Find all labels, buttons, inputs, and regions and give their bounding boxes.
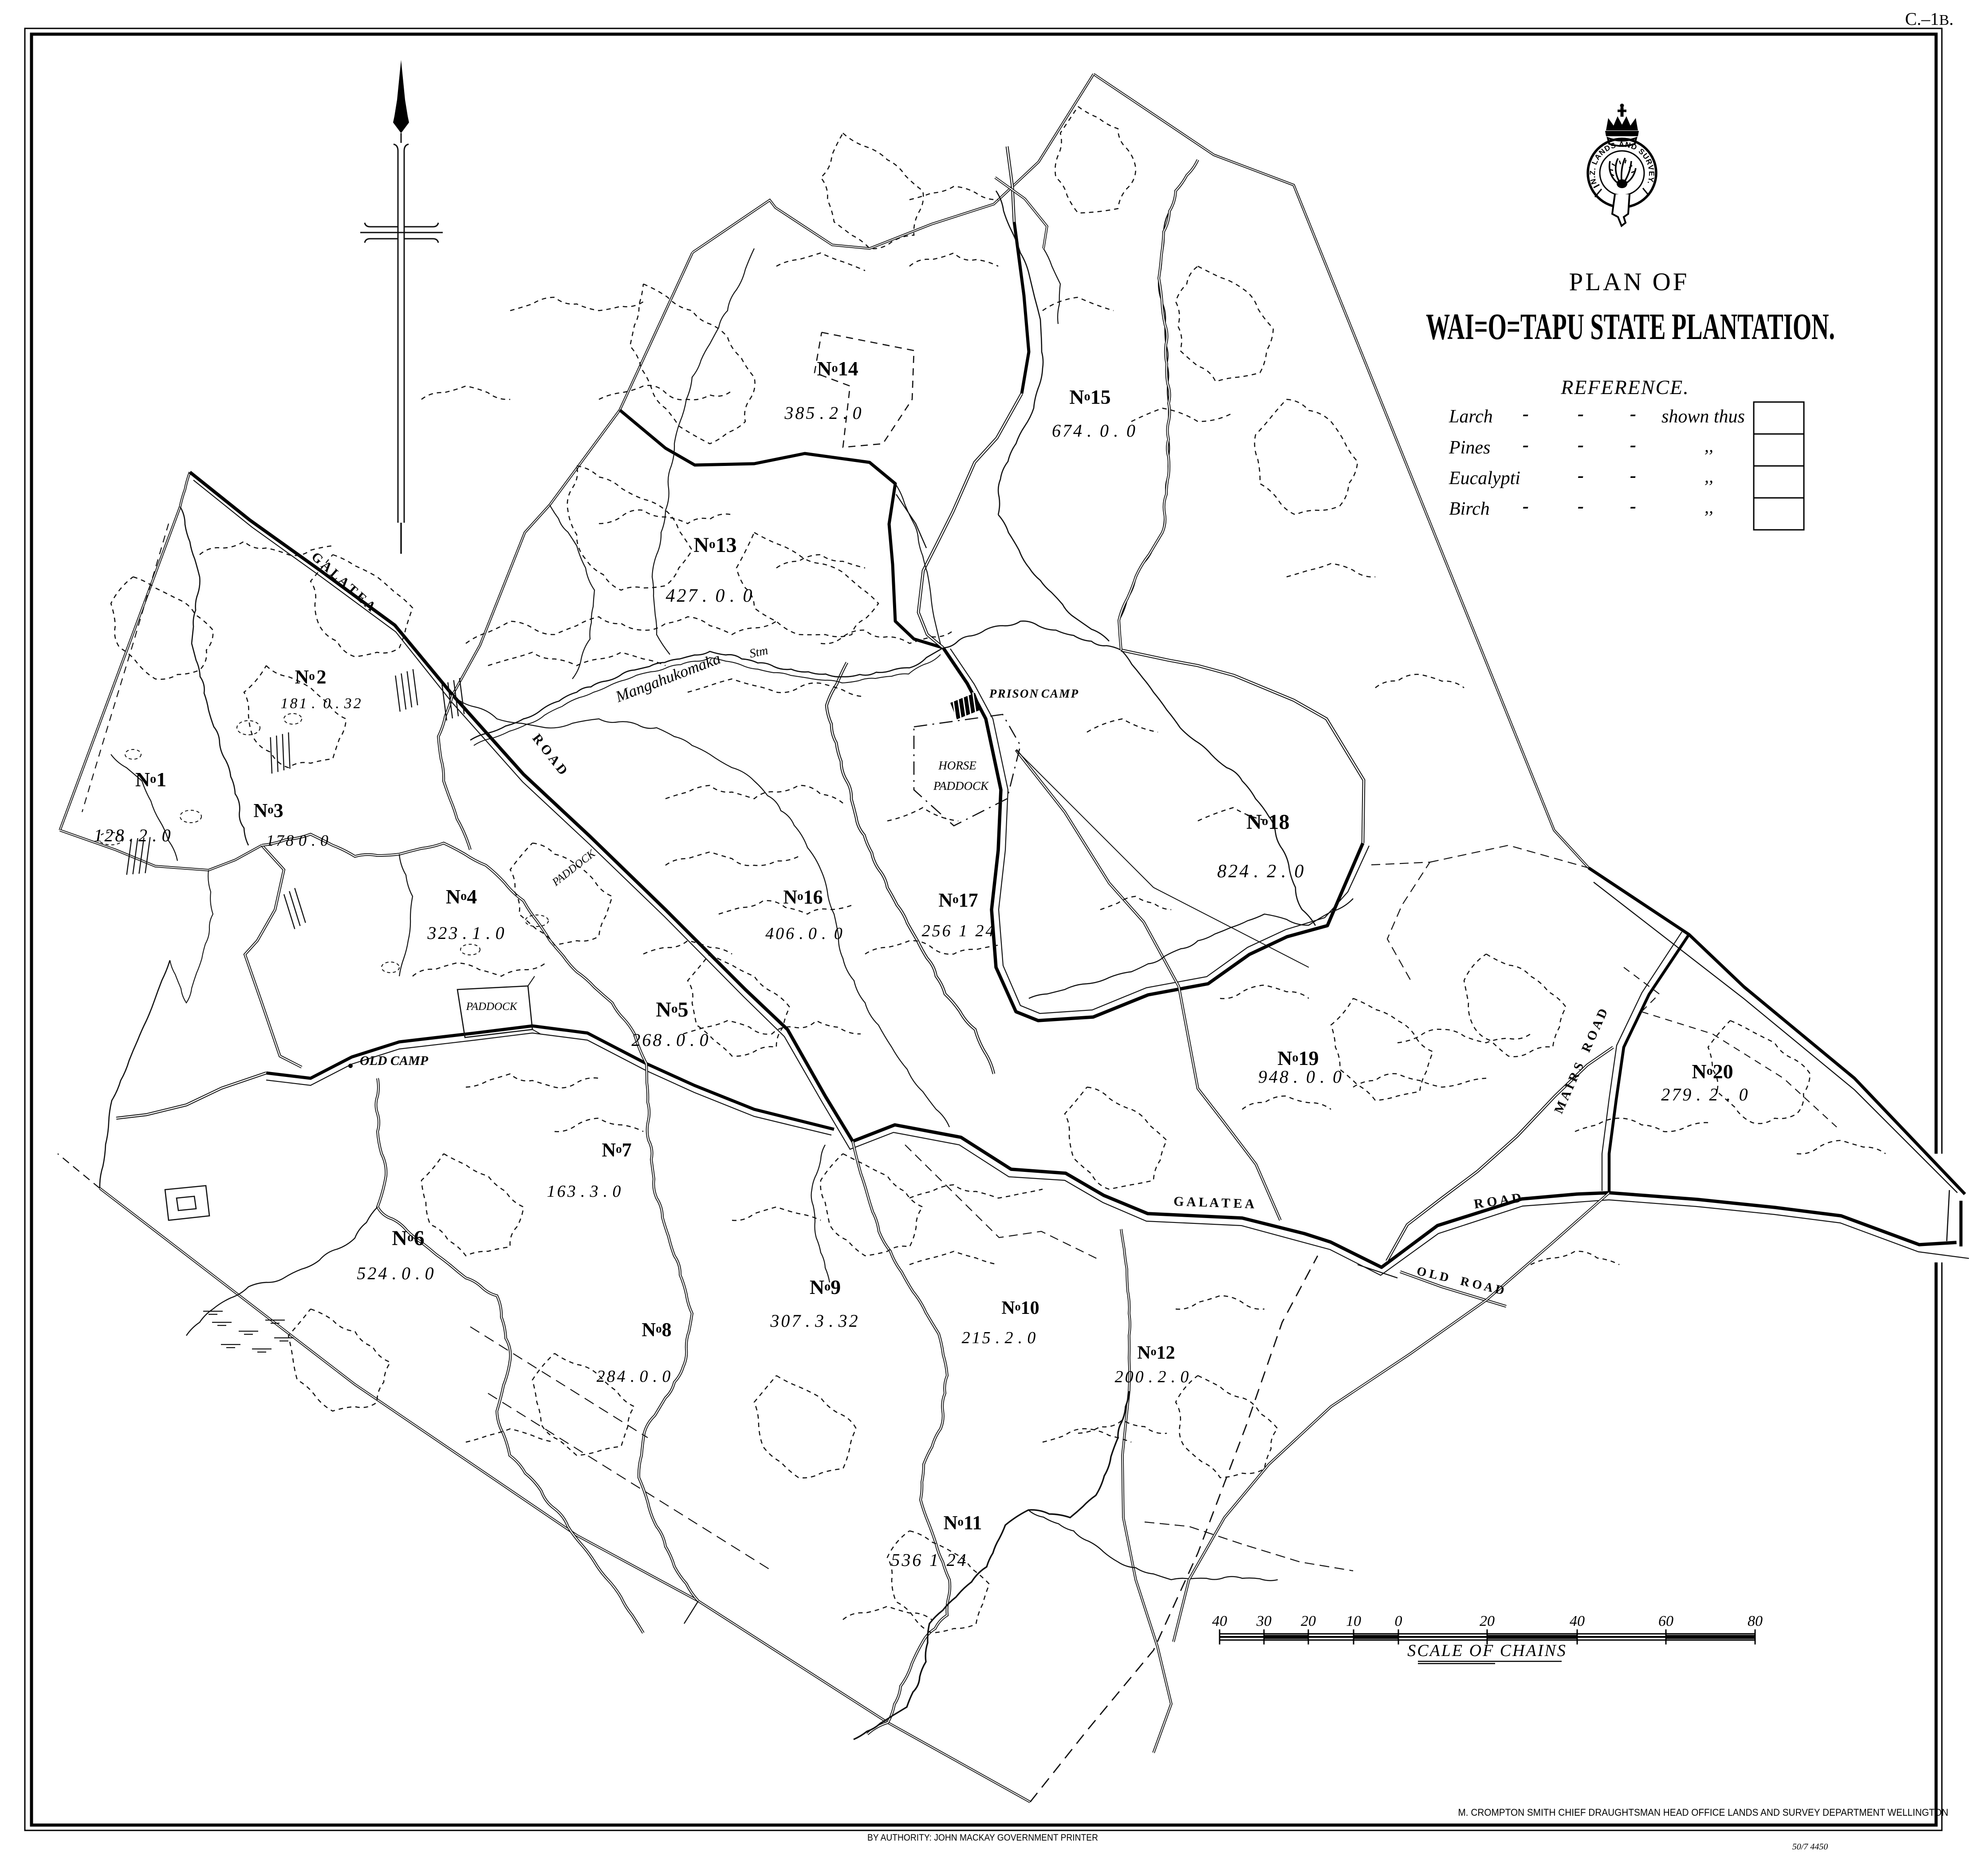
svg-text:SCALE OF CHAINS: SCALE OF CHAINS <box>1407 1641 1567 1660</box>
svg-text:406 . 0 . 0: 406 . 0 . 0 <box>765 924 844 943</box>
svg-text:Larch: Larch <box>1449 406 1493 427</box>
svg-text:BY AUTHORITY: JOHN MACKAY GO: BY AUTHORITY: JOHN MACKAY GOVERNMENT PRI… <box>867 1833 1098 1843</box>
svg-text:-: - <box>1523 404 1529 424</box>
svg-text:40: 40 <box>1570 1613 1585 1629</box>
svg-text:284 . 0 . 0: 284 . 0 . 0 <box>597 1367 673 1386</box>
svg-text:No15: No15 <box>1069 386 1110 408</box>
svg-text:80: 80 <box>1748 1613 1763 1629</box>
svg-text:-: - <box>1630 465 1636 486</box>
svg-text:215 . 2 . 0: 215 . 2 . 0 <box>962 1329 1038 1347</box>
svg-text:-: - <box>1578 435 1584 455</box>
svg-text:200 . 2 . 0: 200 . 2 . 0 <box>1115 1368 1191 1386</box>
svg-text:427 . 0 . 0: 427 . 0 . 0 <box>665 586 754 606</box>
svg-text:No17: No17 <box>938 889 978 911</box>
svg-text:-: - <box>1523 496 1529 517</box>
svg-text:178 0 . 0: 178 0 . 0 <box>266 832 330 849</box>
svg-text:,,: ,, <box>1705 466 1713 486</box>
svg-text:PADDOCK: PADDOCK <box>933 779 989 793</box>
svg-text:-: - <box>1578 465 1584 486</box>
svg-text:60: 60 <box>1658 1613 1673 1629</box>
svg-text:WAI=O=TAPU STATE PLANTATION.: WAI=O=TAPU STATE PLANTATION. <box>1426 306 1835 347</box>
svg-text:524 . 0 . 0: 524 . 0 . 0 <box>357 1263 435 1283</box>
svg-text:No14: No14 <box>817 357 858 380</box>
svg-text:No10: No10 <box>1001 1298 1039 1318</box>
svg-text:307 . 3 . 32: 307 . 3 . 32 <box>770 1311 859 1331</box>
svg-text:No16: No16 <box>783 886 823 908</box>
svg-text:OLD CAMP: OLD CAMP <box>360 1053 429 1068</box>
svg-text:10: 10 <box>1346 1613 1361 1629</box>
svg-text:948 . 0 . 0: 948 . 0 . 0 <box>1258 1067 1343 1087</box>
svg-text:Birch: Birch <box>1449 499 1490 519</box>
svg-text:674 . 0 . 0: 674 . 0 . 0 <box>1052 421 1137 441</box>
svg-text:256 1 24: 256 1 24 <box>922 922 996 940</box>
svg-text:Pines: Pines <box>1449 438 1490 458</box>
svg-text:G A L A T E A: G A L A T E A <box>1173 1194 1255 1211</box>
svg-text:323 . 1 . 0: 323 . 1 . 0 <box>427 923 506 943</box>
svg-text:,,: ,, <box>1705 497 1713 517</box>
svg-text:No18: No18 <box>1246 810 1289 834</box>
svg-text:20: 20 <box>1480 1613 1495 1629</box>
svg-text:128 . 2 . 0: 128 . 2 . 0 <box>94 825 172 845</box>
svg-text:-: - <box>1523 435 1529 455</box>
svg-text:No20: No20 <box>1692 1060 1733 1083</box>
svg-text:824 . 2 . 0: 824 . 2 . 0 <box>1217 861 1305 882</box>
svg-text:P R I S O N C A M P: P R I S O N C A M P <box>989 687 1079 700</box>
svg-text:PADDOCK: PADDOCK <box>466 1001 518 1013</box>
svg-text:20: 20 <box>1301 1613 1316 1629</box>
svg-text:No19: No19 <box>1277 1047 1319 1069</box>
svg-text:-: - <box>1630 496 1636 517</box>
svg-text:M. CROMPTON SMITH CHIEF DRAUG: M. CROMPTON SMITH CHIEF DRAUGHTSMAN HEAD… <box>1458 1807 1949 1818</box>
svg-text:268 . 0 . 0: 268 . 0 . 0 <box>631 1030 710 1050</box>
svg-text:Eucalypti: Eucalypti <box>1449 468 1520 489</box>
svg-text:PLAN OF: PLAN OF <box>1569 268 1689 296</box>
svg-text:No12: No12 <box>1137 1343 1175 1363</box>
svg-text:0: 0 <box>1395 1613 1402 1629</box>
svg-text:shown thus: shown thus <box>1661 406 1745 427</box>
svg-text:279 . 2 . 0: 279 . 2 . 0 <box>1661 1084 1749 1104</box>
svg-text:,,: ,, <box>1705 436 1713 456</box>
svg-text:181 . 0 . 32: 181 . 0 . 32 <box>280 695 362 712</box>
svg-text:-: - <box>1578 496 1584 517</box>
svg-text:-: - <box>1578 404 1584 424</box>
svg-text:536 1 24: 536 1 24 <box>891 1550 968 1570</box>
svg-text:40: 40 <box>1212 1613 1227 1629</box>
svg-text:C.–1B.: C.–1B. <box>1905 9 1953 29</box>
svg-text:REFERENCE.: REFERENCE. <box>1560 376 1689 398</box>
svg-text:385 . 2 . 0: 385 . 2 . 0 <box>784 403 863 423</box>
svg-text:HORSE: HORSE <box>938 759 976 772</box>
svg-text:No13: No13 <box>693 533 736 557</box>
svg-text:-: - <box>1630 435 1636 455</box>
svg-text:-: - <box>1630 404 1636 424</box>
svg-text:30: 30 <box>1256 1613 1272 1629</box>
svg-text:163 . 3 . 0: 163 . 3 . 0 <box>547 1182 623 1201</box>
svg-text:50/7 4450: 50/7 4450 <box>1792 1842 1828 1852</box>
